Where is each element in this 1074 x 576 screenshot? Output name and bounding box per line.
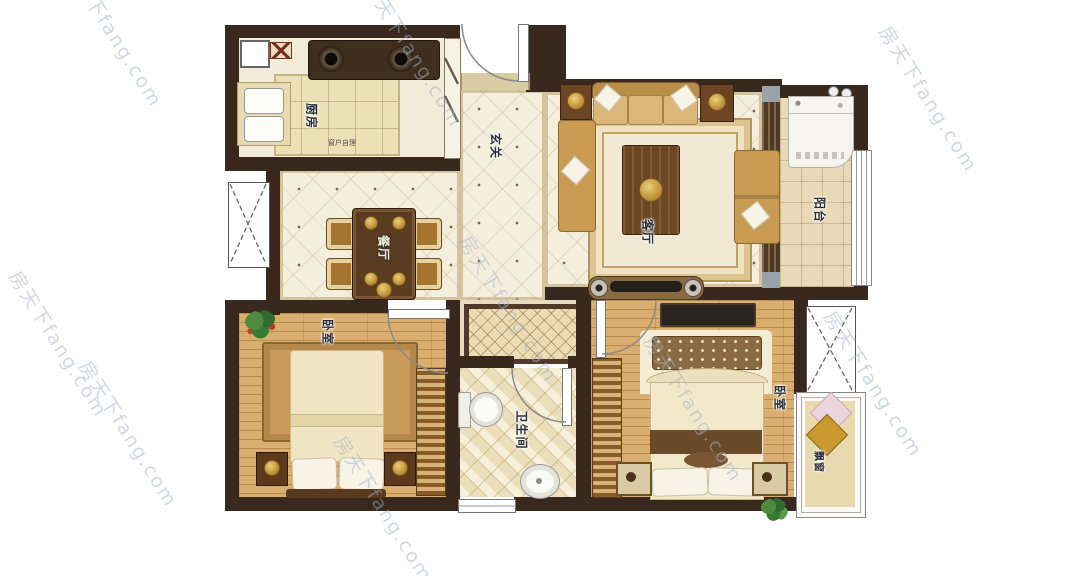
wall-dining-bottom — [225, 300, 388, 313]
bay-window-left-hatch — [228, 182, 270, 268]
label-kitchen-note: 窗户自理 — [328, 138, 356, 148]
label-bedroom-left: 卧室 — [320, 319, 337, 345]
plant2-icon — [760, 498, 788, 522]
kitchen-counter-box — [240, 40, 270, 68]
wardrobe-left — [416, 368, 446, 496]
entry-door-leaf — [518, 24, 529, 82]
washing-machine-vents — [796, 152, 844, 159]
nightstand-knob-icon — [626, 472, 636, 482]
sofa-cushion — [628, 95, 663, 125]
sink-basin-bottom — [244, 116, 284, 142]
bed-left-blanket-top — [290, 350, 384, 416]
kitchen-hood-icon — [270, 42, 292, 59]
label-entrance: 玄关 — [488, 133, 505, 159]
wall-bathroom-top-right — [568, 356, 591, 368]
wall-kitchen-bottom — [225, 157, 460, 171]
label-living-room: 客厅 — [640, 219, 657, 245]
balcony-window — [851, 150, 872, 286]
dining-centerpiece-icon — [376, 282, 392, 298]
coffee-table-bowl-icon — [639, 178, 663, 202]
plant-icon — [244, 310, 278, 340]
sofa-single-right — [734, 150, 780, 244]
sink-basin-top — [244, 88, 284, 114]
wall-balcony-right-upper — [854, 85, 868, 153]
dining-chair — [412, 218, 442, 250]
speaker-icon — [684, 279, 702, 297]
speaker-icon — [590, 279, 608, 297]
watermark-text: 房天下fang.com — [873, 20, 985, 177]
watermark-text: 房天下fang.com — [58, 0, 170, 112]
watermark-text: 房天下fang.com — [73, 355, 185, 512]
wall-stub-divider-bottom — [762, 272, 780, 288]
label-dining-room: 餐厅 — [376, 235, 393, 261]
stove-burner-left-icon — [318, 46, 344, 72]
tv-bedroom — [660, 303, 756, 327]
nightstand-lamp-icon — [392, 460, 408, 476]
tv-living — [610, 281, 682, 292]
side-table-lamp-icon — [567, 92, 585, 110]
dining-plate-icon — [364, 272, 378, 286]
wall-bedroom-left-outer — [225, 300, 239, 511]
label-balcony: 阳台 — [812, 197, 829, 223]
bathroom-window — [458, 499, 516, 513]
label-bay-window: 飘窗 — [813, 451, 828, 473]
label-bathroom: 卫生间 — [514, 410, 531, 449]
dining-plate-icon — [392, 216, 406, 230]
bed-right-pillow — [652, 467, 709, 497]
washbasin-drain-icon — [536, 478, 542, 484]
bedroom-right-door-leaf — [596, 300, 606, 358]
bedroom-left-door-leaf — [388, 309, 450, 319]
wall-bathroom-top-left — [446, 356, 514, 368]
bed-left-pillow — [291, 457, 337, 491]
bathroom-door-leaf — [562, 368, 572, 426]
toilet-bowl — [469, 392, 503, 427]
wall-kitchen-top — [225, 25, 460, 38]
nightstand-knob-icon — [762, 472, 772, 482]
floor-plan-canvas: 厨房 窗户自理 玄关 客厅 阳台 餐厅 卧室 卫生间 卧室 飘窗 房天下fang… — [0, 0, 1074, 576]
label-kitchen: 厨房 — [304, 103, 321, 129]
dining-plate-icon — [392, 272, 406, 286]
wall-corridor-right — [576, 300, 591, 497]
dining-plate-icon — [364, 216, 378, 230]
nightstand-lamp-icon — [264, 460, 280, 476]
label-bedroom-right: 卧室 — [772, 385, 789, 411]
dining-chair — [412, 258, 442, 290]
wall-stub-divider-top — [762, 86, 780, 102]
side-table-lamp2-icon — [708, 93, 726, 111]
wall-bottom-left — [225, 497, 460, 511]
